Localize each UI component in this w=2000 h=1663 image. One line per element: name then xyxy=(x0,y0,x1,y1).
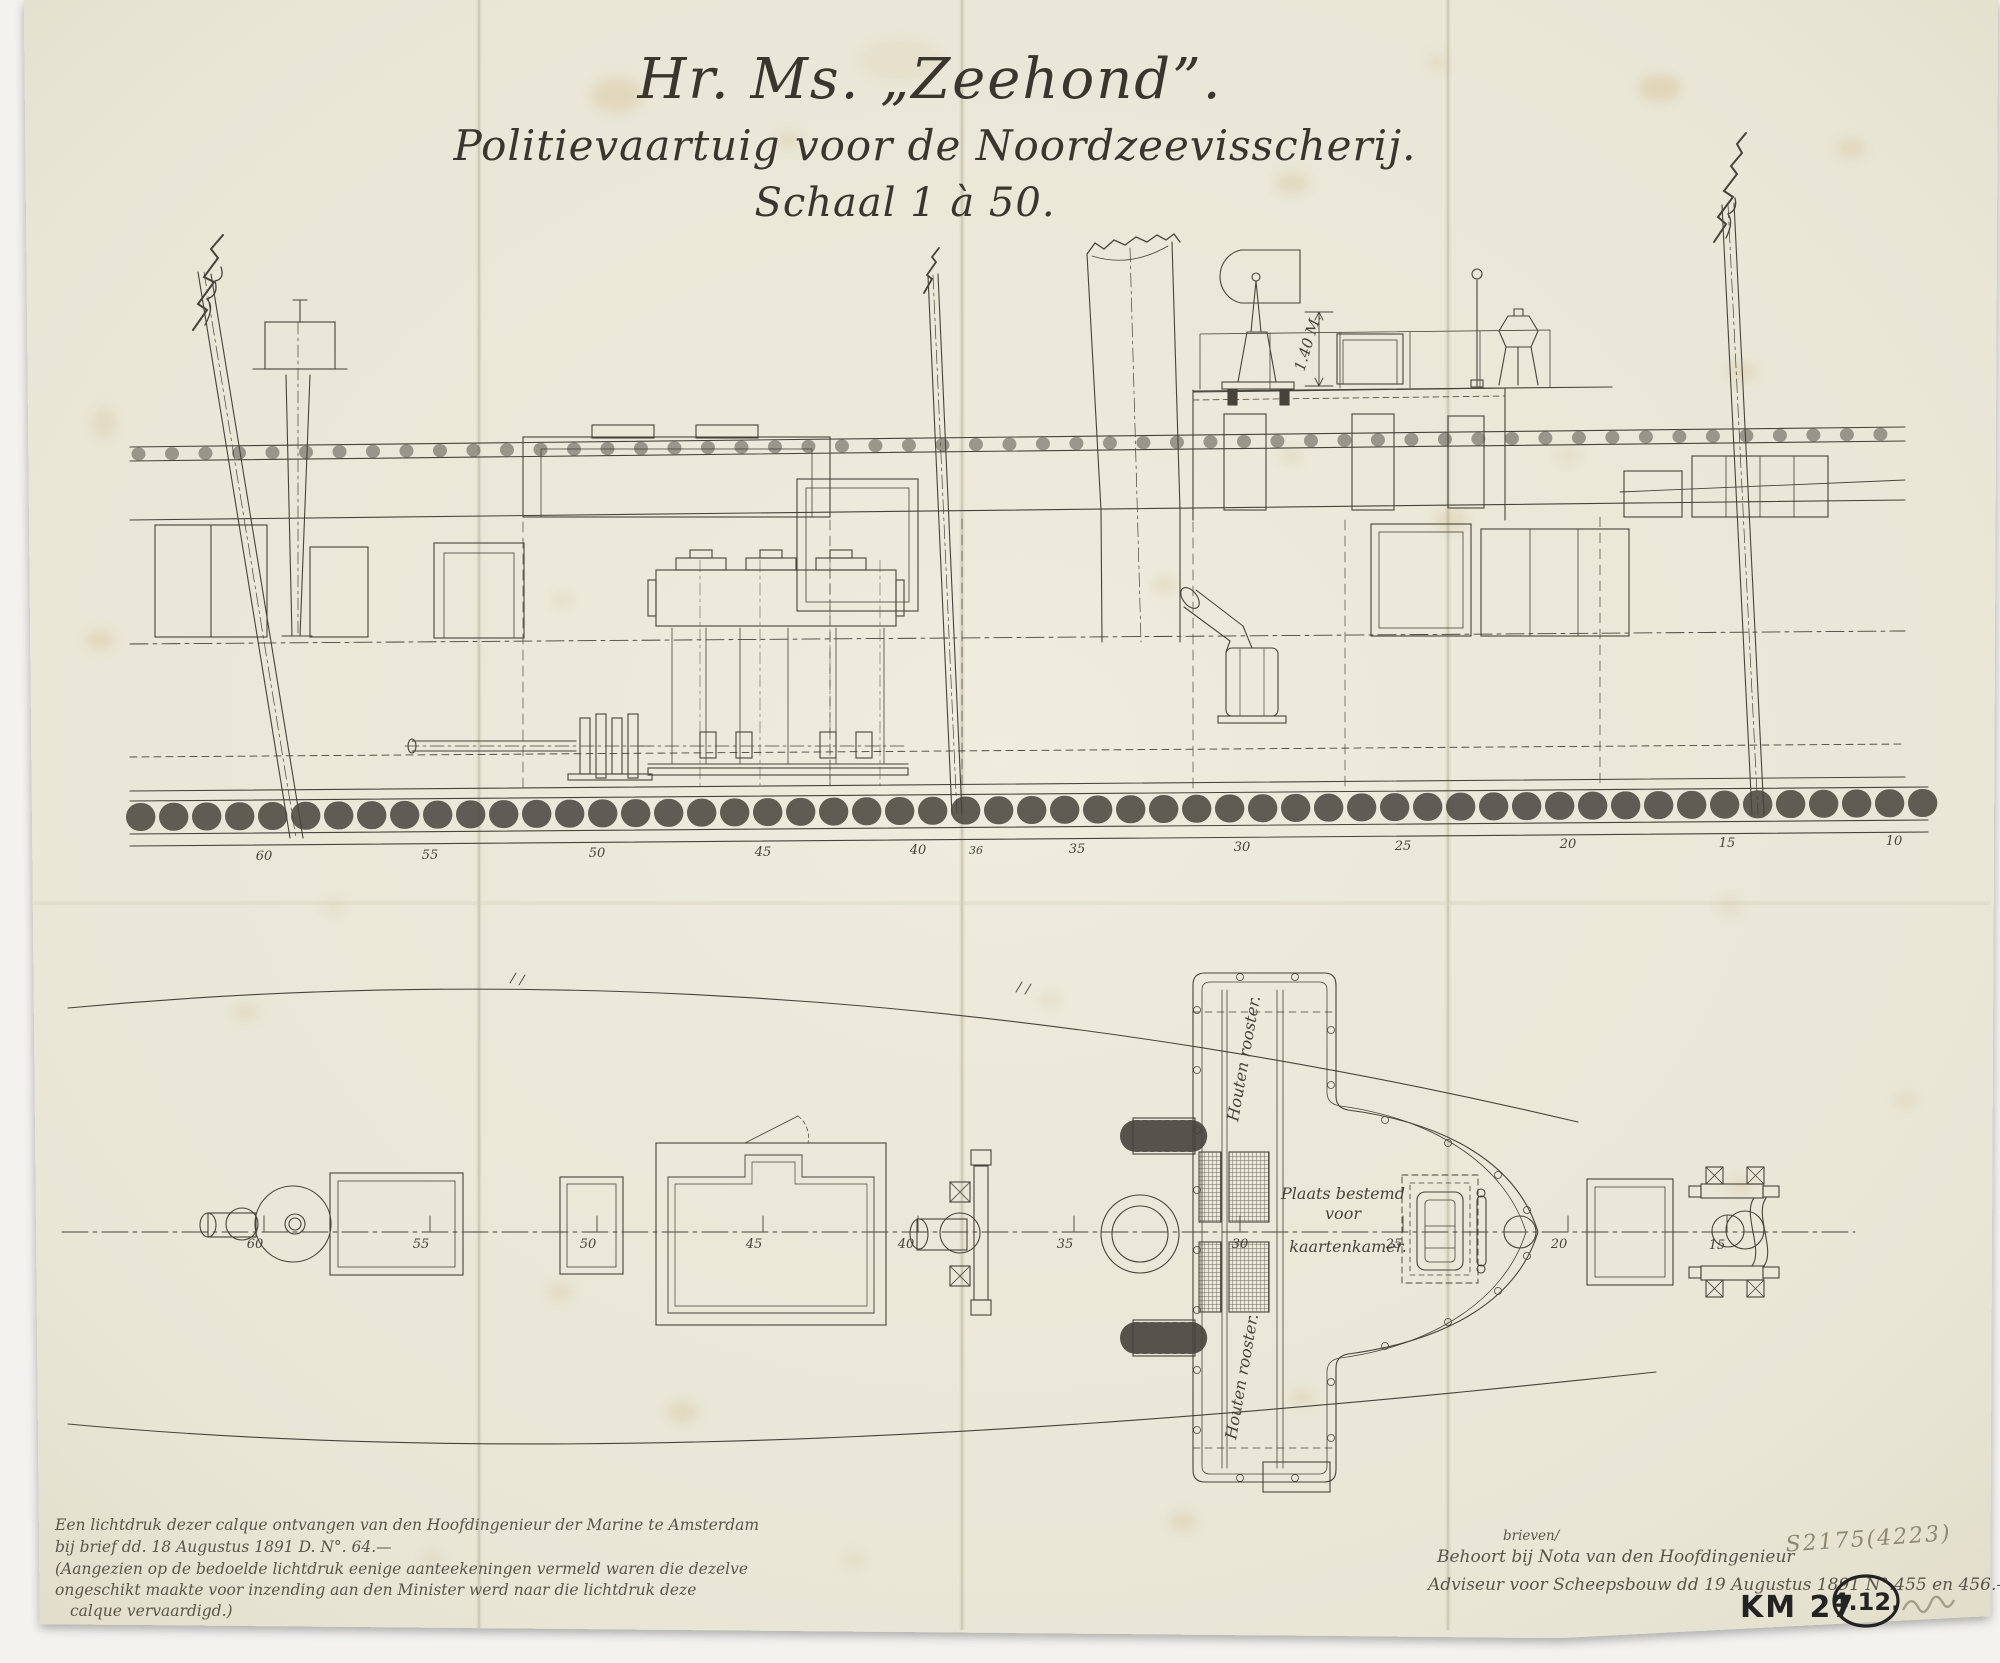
side-ladder xyxy=(1133,1320,1195,1356)
note-line: (Aangezien op de bedoelde lichtdruk eeni… xyxy=(55,1560,748,1578)
frame-number: 10 xyxy=(1886,834,1903,849)
frame-number: 50 xyxy=(589,846,606,861)
chart-room-note-line1: Plaats bestemd xyxy=(1280,1184,1405,1203)
chart-room-note-line3: kaartenkamer. xyxy=(1289,1237,1406,1256)
frame-number: 45 xyxy=(745,1237,763,1252)
frame-number: 35 xyxy=(1057,1237,1074,1252)
frame-number: 36 xyxy=(969,844,983,857)
frame-number: 20 xyxy=(1559,837,1577,852)
frame-number: 30 xyxy=(1234,840,1251,855)
title-line3: Schaal 1 à 50. xyxy=(754,180,1055,226)
frame-number: 35 xyxy=(1069,842,1086,857)
frame-number: 55 xyxy=(422,848,439,863)
note-line: ongeschikt maakte voor inzending aan den… xyxy=(55,1581,696,1599)
frame-number: 15 xyxy=(1709,1238,1726,1253)
side-ladder xyxy=(1133,1118,1195,1154)
note-line: Een lichtdruk dezer calque ontvangen van… xyxy=(54,1516,759,1534)
frame-number: 30 xyxy=(1232,1237,1249,1252)
note-line: calque vervaardigd.) xyxy=(70,1602,233,1620)
scanned-ship-drawing: Hr. Ms. „Zeehond”. Politievaartuig voor … xyxy=(0,0,2000,1663)
frame-number: 55 xyxy=(413,1237,430,1252)
holdfast-clamp xyxy=(1280,389,1289,405)
paper-sheet xyxy=(0,0,2000,1663)
frame-number: 40 xyxy=(897,1237,915,1252)
frame-number: 25 xyxy=(1394,839,1412,854)
note-line: bij brief dd. 18 Augustus 1891 D. N°. 64… xyxy=(55,1538,392,1556)
holdfast-clamp xyxy=(1228,389,1237,405)
chart-room-note-line2: voor xyxy=(1325,1204,1362,1223)
inserted-word: brieven/ xyxy=(1503,1528,1561,1544)
title-line1: Hr. Ms. „Zeehond”. xyxy=(636,47,1222,112)
title-line2: Politievaartuig voor de Noordzeevisscher… xyxy=(453,121,1417,170)
note-line: Behoort bij Nota van den Hoofdingenieur xyxy=(1436,1547,1795,1567)
note-line: Adviseur voor Scheepsbouw dd 19 Augustus… xyxy=(1426,1575,2000,1595)
circled-number: 4.12. xyxy=(1832,1588,1900,1616)
frame-number: 60 xyxy=(247,1237,264,1252)
frame-number: 45 xyxy=(754,845,772,860)
frame-number: 15 xyxy=(1719,836,1736,851)
frame-number: 40 xyxy=(909,843,927,858)
frame-number: 50 xyxy=(580,1237,597,1252)
frame-number: 60 xyxy=(256,849,273,864)
frame-number: 20 xyxy=(1550,1237,1568,1252)
